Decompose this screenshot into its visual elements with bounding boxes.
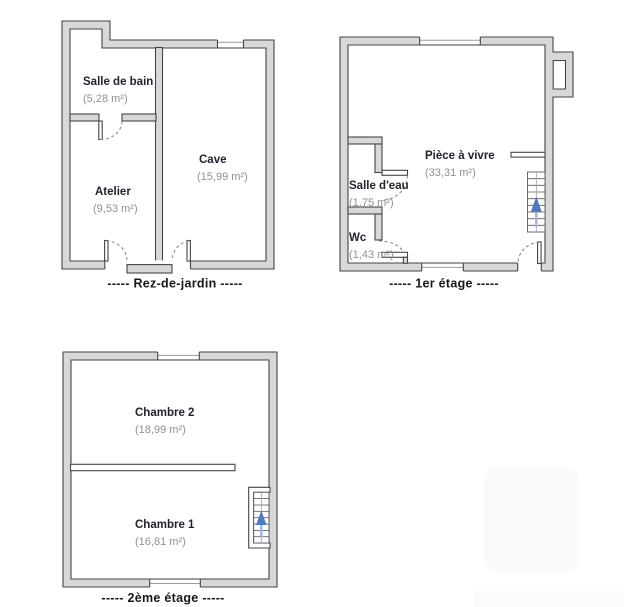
room-name-label: Pièce à vivre [425, 150, 495, 162]
room-name-label: Salle de bain [83, 76, 153, 88]
room-area-label: (18,99 m²) [135, 424, 186, 436]
threshold-wall [127, 265, 172, 273]
door-leaf [105, 241, 108, 262]
entry-door [518, 242, 542, 272]
half-wall [511, 152, 545, 157]
floor-label: ----- Rez-de-jardin ----- [107, 277, 242, 291]
entry-doors [105, 241, 191, 274]
door-leaf [382, 170, 408, 175]
room-name-label: Chambre 1 [135, 519, 195, 531]
exterior-wall [62, 21, 274, 269]
window [218, 39, 244, 48]
room-area-label: (15,99 m²) [197, 171, 248, 183]
door-swing-arc [106, 241, 127, 261]
stairs [528, 172, 546, 232]
floor-label: ----- 2ème étage ----- [101, 591, 224, 605]
door-swing-arc [518, 243, 539, 264]
stairs [249, 487, 270, 548]
room-area-label: (1,75 m²) [349, 197, 394, 209]
window [158, 351, 200, 360]
floor-plans-canvas: Salle de bain (5,28 m²) Cave (15,99 m²) … [0, 0, 624, 607]
floor-plan-2eme-etage: Chambre 2 (18,99 m²) Chambre 1 (16,81 m²… [63, 351, 277, 605]
window [420, 36, 481, 45]
floor-plan-rez-de-jardin: Salle de bain (5,28 m²) Cave (15,99 m²) … [62, 21, 274, 291]
door-leaf [99, 121, 102, 140]
room-name-label: Atelier [95, 186, 131, 198]
room-name-label: Wc [349, 232, 367, 244]
window [422, 263, 464, 272]
room-area-label: (16,81 m²) [135, 536, 186, 548]
interior-wall [156, 48, 163, 266]
interior-wall-with-door [70, 114, 156, 140]
partition-wall [71, 464, 236, 470]
door-leaf [538, 242, 542, 264]
room-area-label: (9,53 m²) [93, 203, 138, 215]
floor-plan-1er-etage: Pièce à vivre (33,31 m²) Salle d'eau (1,… [340, 36, 573, 290]
room-area-label: (5,28 m²) [83, 93, 128, 105]
room-area-label: (33,31 m²) [425, 167, 476, 179]
door-swing-arc [172, 241, 189, 261]
floor-label: ----- 1er étage ----- [389, 277, 499, 291]
door-leaf [187, 241, 190, 262]
room-name-label: Chambre 2 [135, 407, 194, 419]
door-swing-arc [101, 121, 123, 140]
floor-plan-page: Salle de bain (5,28 m²) Cave (15,99 m²) … [0, 0, 624, 607]
window [150, 579, 201, 588]
room-area-label: (1,43 m²) [349, 249, 394, 261]
room-name-label: Cave [199, 154, 227, 166]
room-name-label: Salle d'eau [349, 180, 409, 192]
